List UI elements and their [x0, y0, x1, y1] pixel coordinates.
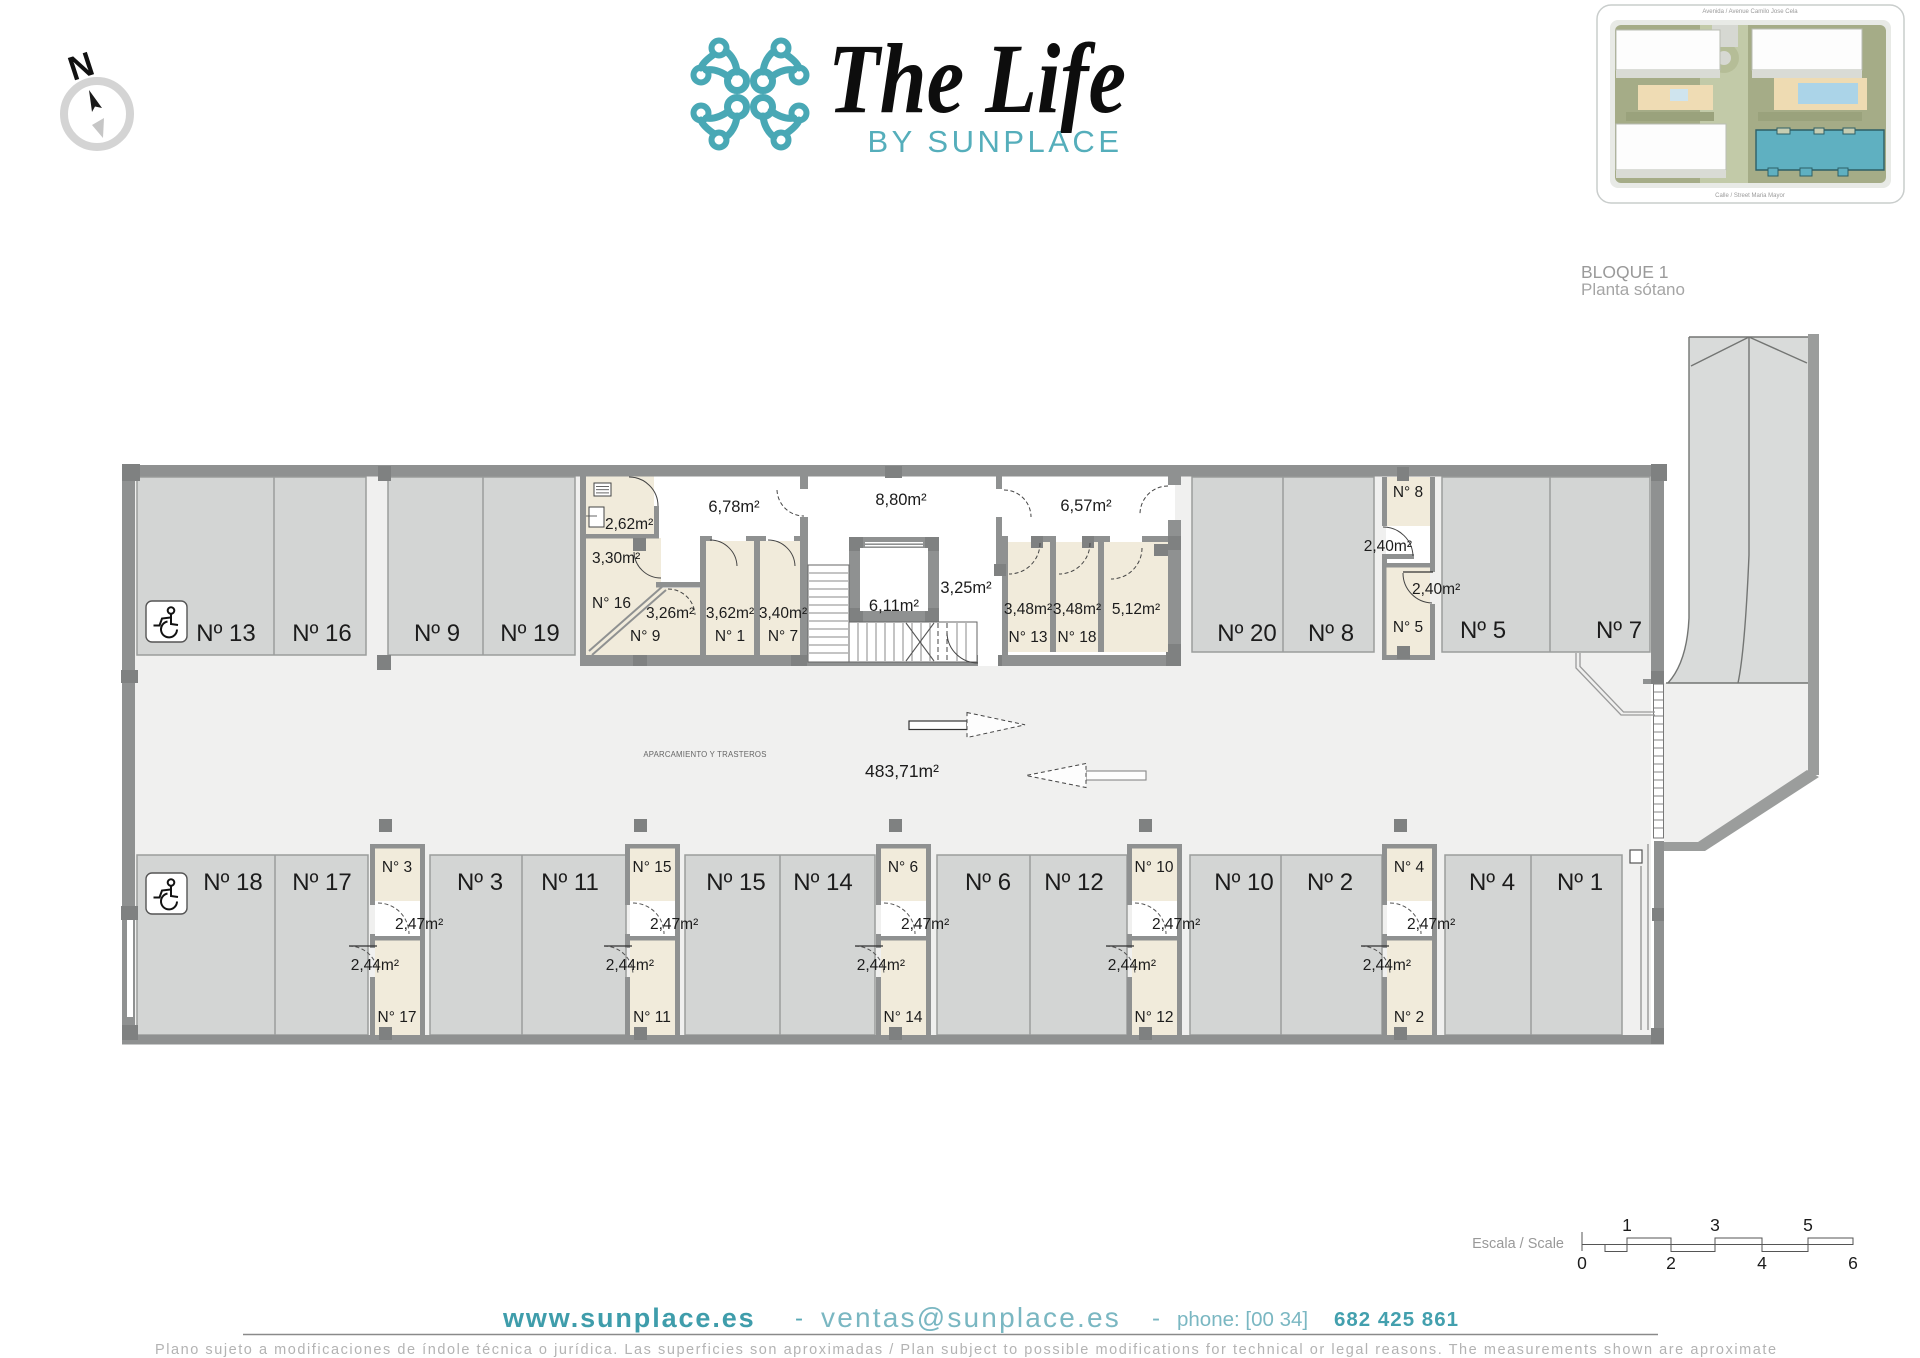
svg-text:N° 8: N° 8	[1393, 484, 1423, 501]
svg-text:3,25m²: 3,25m²	[940, 579, 992, 597]
svg-text:Nº 9: Nº 9	[414, 620, 460, 647]
svg-text:2,40m²: 2,40m²	[1364, 538, 1412, 555]
svg-text:5: 5	[1803, 1215, 1813, 1235]
svg-text:Nº 8: Nº 8	[1308, 620, 1354, 647]
svg-text:N° 16: N° 16	[592, 595, 631, 612]
svg-text:phone: [00 34]: phone: [00 34]	[1177, 1308, 1308, 1331]
svg-text:Nº 3: Nº 3	[457, 869, 503, 896]
svg-text:BLOQUE 1: BLOQUE 1	[1581, 262, 1669, 282]
svg-text:The Life: The Life	[828, 23, 1126, 134]
svg-text:APARCAMIENTO Y TRASTEROS: APARCAMIENTO Y TRASTEROS	[643, 750, 766, 759]
svg-text:6,11m²: 6,11m²	[869, 597, 920, 615]
svg-text:1: 1	[1622, 1215, 1632, 1235]
svg-text:N° 1: N° 1	[715, 628, 745, 645]
svg-text:3,26m²: 3,26m²	[646, 605, 694, 622]
svg-text:483,71m²: 483,71m²	[865, 761, 939, 781]
svg-text:2,44m²: 2,44m²	[1108, 957, 1156, 974]
svg-text:3,62m²: 3,62m²	[706, 605, 754, 622]
svg-text:6,57m²: 6,57m²	[1060, 497, 1112, 515]
svg-text:0: 0	[1577, 1253, 1587, 1273]
svg-text:Nº 1: Nº 1	[1557, 869, 1603, 896]
svg-text:4: 4	[1757, 1253, 1767, 1273]
svg-text:Nº 5: Nº 5	[1460, 617, 1506, 644]
svg-text:2,47m²: 2,47m²	[1152, 916, 1200, 933]
svg-text:3,40m²: 3,40m²	[759, 605, 807, 622]
svg-text:3,48m²: 3,48m²	[1053, 601, 1101, 618]
svg-text:Nº 11: Nº 11	[541, 869, 599, 896]
svg-text:3,30m²: 3,30m²	[592, 550, 640, 567]
svg-text:3,48m²: 3,48m²	[1004, 601, 1052, 618]
svg-text:N° 4: N° 4	[1394, 859, 1425, 876]
svg-text:2,44m²: 2,44m²	[606, 957, 654, 974]
svg-text:Nº 10: Nº 10	[1214, 869, 1273, 896]
svg-text:www.sunplace.es: www.sunplace.es	[502, 1303, 756, 1333]
svg-text:N° 6: N° 6	[888, 859, 918, 876]
svg-text:2,44m²: 2,44m²	[351, 957, 399, 974]
svg-text:2: 2	[1666, 1253, 1676, 1273]
svg-text:N° 17: N° 17	[378, 1009, 417, 1026]
svg-text:ventas@sunplace.es: ventas@sunplace.es	[821, 1302, 1121, 1333]
svg-text:Nº 13: Nº 13	[196, 620, 255, 647]
svg-text:N° 14: N° 14	[884, 1009, 923, 1026]
svg-text:2,47m²: 2,47m²	[395, 916, 443, 933]
svg-text:Planta sótano: Planta sótano	[1581, 280, 1685, 299]
svg-text:N° 18: N° 18	[1058, 629, 1097, 646]
svg-text:N° 3: N° 3	[382, 859, 412, 876]
svg-text:Calle / Street Maria Mayor: Calle / Street Maria Mayor	[1715, 193, 1785, 199]
svg-text:N° 11: N° 11	[633, 1009, 671, 1026]
svg-text:Plano sujeto a modificaciones: Plano sujeto a modificaciones de índole …	[155, 1342, 1778, 1358]
svg-text:Nº 2: Nº 2	[1307, 869, 1353, 896]
svg-text:8,80m²: 8,80m²	[875, 491, 927, 509]
svg-text:N° 12: N° 12	[1135, 1009, 1174, 1026]
svg-text:Nº 14: Nº 14	[793, 869, 852, 896]
svg-text:2,40m²: 2,40m²	[1412, 581, 1460, 598]
svg-text:N° 10: N° 10	[1135, 859, 1174, 876]
svg-text:Nº 19: Nº 19	[500, 620, 559, 647]
svg-text:2,44m²: 2,44m²	[1363, 957, 1411, 974]
svg-text:6,78m²: 6,78m²	[708, 498, 760, 516]
svg-text:Avenida / Avenue Camilo Jose: Avenida / Avenue Camilo Jose Cela	[1702, 9, 1798, 15]
svg-text:N° 9: N° 9	[630, 628, 660, 645]
svg-text:Nº 16: Nº 16	[292, 620, 351, 647]
svg-text:N° 7: N° 7	[768, 628, 798, 645]
svg-text:2,62m²: 2,62m²	[605, 516, 653, 533]
svg-text:2,47m²: 2,47m²	[650, 916, 698, 933]
svg-text:Nº 17: Nº 17	[292, 869, 351, 896]
svg-text:Nº 20: Nº 20	[1217, 620, 1276, 647]
svg-text:Escala / Scale: Escala / Scale	[1472, 1236, 1564, 1252]
svg-text:2,44m²: 2,44m²	[857, 957, 905, 974]
svg-text:6: 6	[1848, 1253, 1858, 1273]
svg-text:N° 5: N° 5	[1393, 619, 1423, 636]
svg-text:5,12m²: 5,12m²	[1112, 601, 1160, 618]
svg-text:N° 15: N° 15	[633, 859, 672, 876]
svg-text:Nº 7: Nº 7	[1596, 617, 1642, 644]
svg-text:Nº 6: Nº 6	[965, 869, 1011, 896]
svg-text:N° 2: N° 2	[1394, 1009, 1424, 1026]
svg-text:2,47m²: 2,47m²	[901, 916, 949, 933]
svg-text:Nº 4: Nº 4	[1469, 869, 1515, 896]
svg-text:Nº 15: Nº 15	[706, 869, 765, 896]
svg-text:N° 13: N° 13	[1009, 629, 1048, 646]
svg-text:Nº 18: Nº 18	[203, 869, 262, 896]
svg-text:-: -	[1152, 1305, 1160, 1332]
svg-text:-: -	[795, 1305, 803, 1332]
svg-text:682 425 861: 682 425 861	[1334, 1308, 1459, 1331]
svg-text:2,47m²: 2,47m²	[1407, 916, 1455, 933]
svg-text:BY SUNPLACE: BY SUNPLACE	[867, 124, 1122, 159]
svg-text:Nº 12: Nº 12	[1044, 869, 1103, 896]
svg-text:3: 3	[1710, 1215, 1720, 1235]
